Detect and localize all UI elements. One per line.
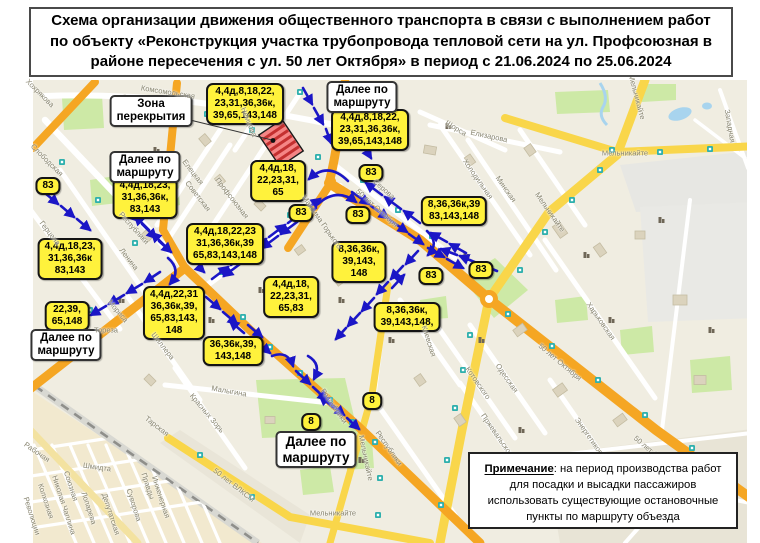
- detour-label: Далее помаршруту: [326, 81, 397, 113]
- route-number-label: 8: [301, 413, 321, 431]
- street-name-label: Тореза: [94, 326, 118, 335]
- route-number-label: 4,4д,18,22,2331,36,36к,3965,83,143,148: [186, 223, 264, 265]
- route-number-label: 8,36,36к,39,143,148,: [374, 302, 441, 332]
- detour-label: Далее помаршруту: [109, 151, 180, 183]
- roundabout: [483, 293, 496, 306]
- title-line: районе пересечения с ул. 50 лет Октября»…: [31, 52, 731, 72]
- closure-zone-label: Зонаперекрытия: [110, 95, 193, 127]
- scheme-title: Схема организации движения общественного…: [29, 7, 733, 77]
- route-number-label: 83: [468, 261, 493, 279]
- route-number-label: 83: [345, 206, 370, 224]
- route-number-label: 4,4д,18,23,31,36,36к83,143: [38, 238, 103, 280]
- street-name-label: Мельникайте: [310, 509, 356, 518]
- title-line: Схема организации движения общественного…: [31, 11, 731, 31]
- transport-scheme-page: 4,4д,8,18,22,23,31,36,36к,39,65,143,1484…: [0, 0, 760, 543]
- note-heading: Примечание: [485, 463, 554, 475]
- route-number-label: 4,4д,18,22,23,31,65: [250, 160, 306, 202]
- route-number-label: 8: [362, 392, 382, 410]
- detour-label: Далее помаршруту: [30, 329, 101, 361]
- detour-label: Далее помаршруту: [275, 431, 356, 468]
- route-number-label: 4,4д,22,3136,36к,39,65,83,143,148: [143, 286, 205, 340]
- route-number-label: 83: [35, 177, 60, 195]
- route-number-label: 4,4д,18,22,23,31,65,83: [263, 276, 319, 318]
- note-box: Примечание: на период производства работ…: [468, 452, 738, 529]
- title-line: по объекту «Реконструкция участка трубоп…: [31, 32, 731, 52]
- route-number-label: 22,39,65,148: [45, 301, 90, 331]
- route-number-label: 8,36,36к,3983,143,148: [421, 196, 487, 226]
- route-number-label: 4,4д,8,18,22,23,31,36,36к,39,65,143,148: [331, 109, 409, 151]
- route-number-label: 83: [418, 267, 443, 285]
- street-name-label: Мельникайте: [602, 149, 648, 158]
- route-number-label: 36,36к,39,143,148: [203, 336, 264, 366]
